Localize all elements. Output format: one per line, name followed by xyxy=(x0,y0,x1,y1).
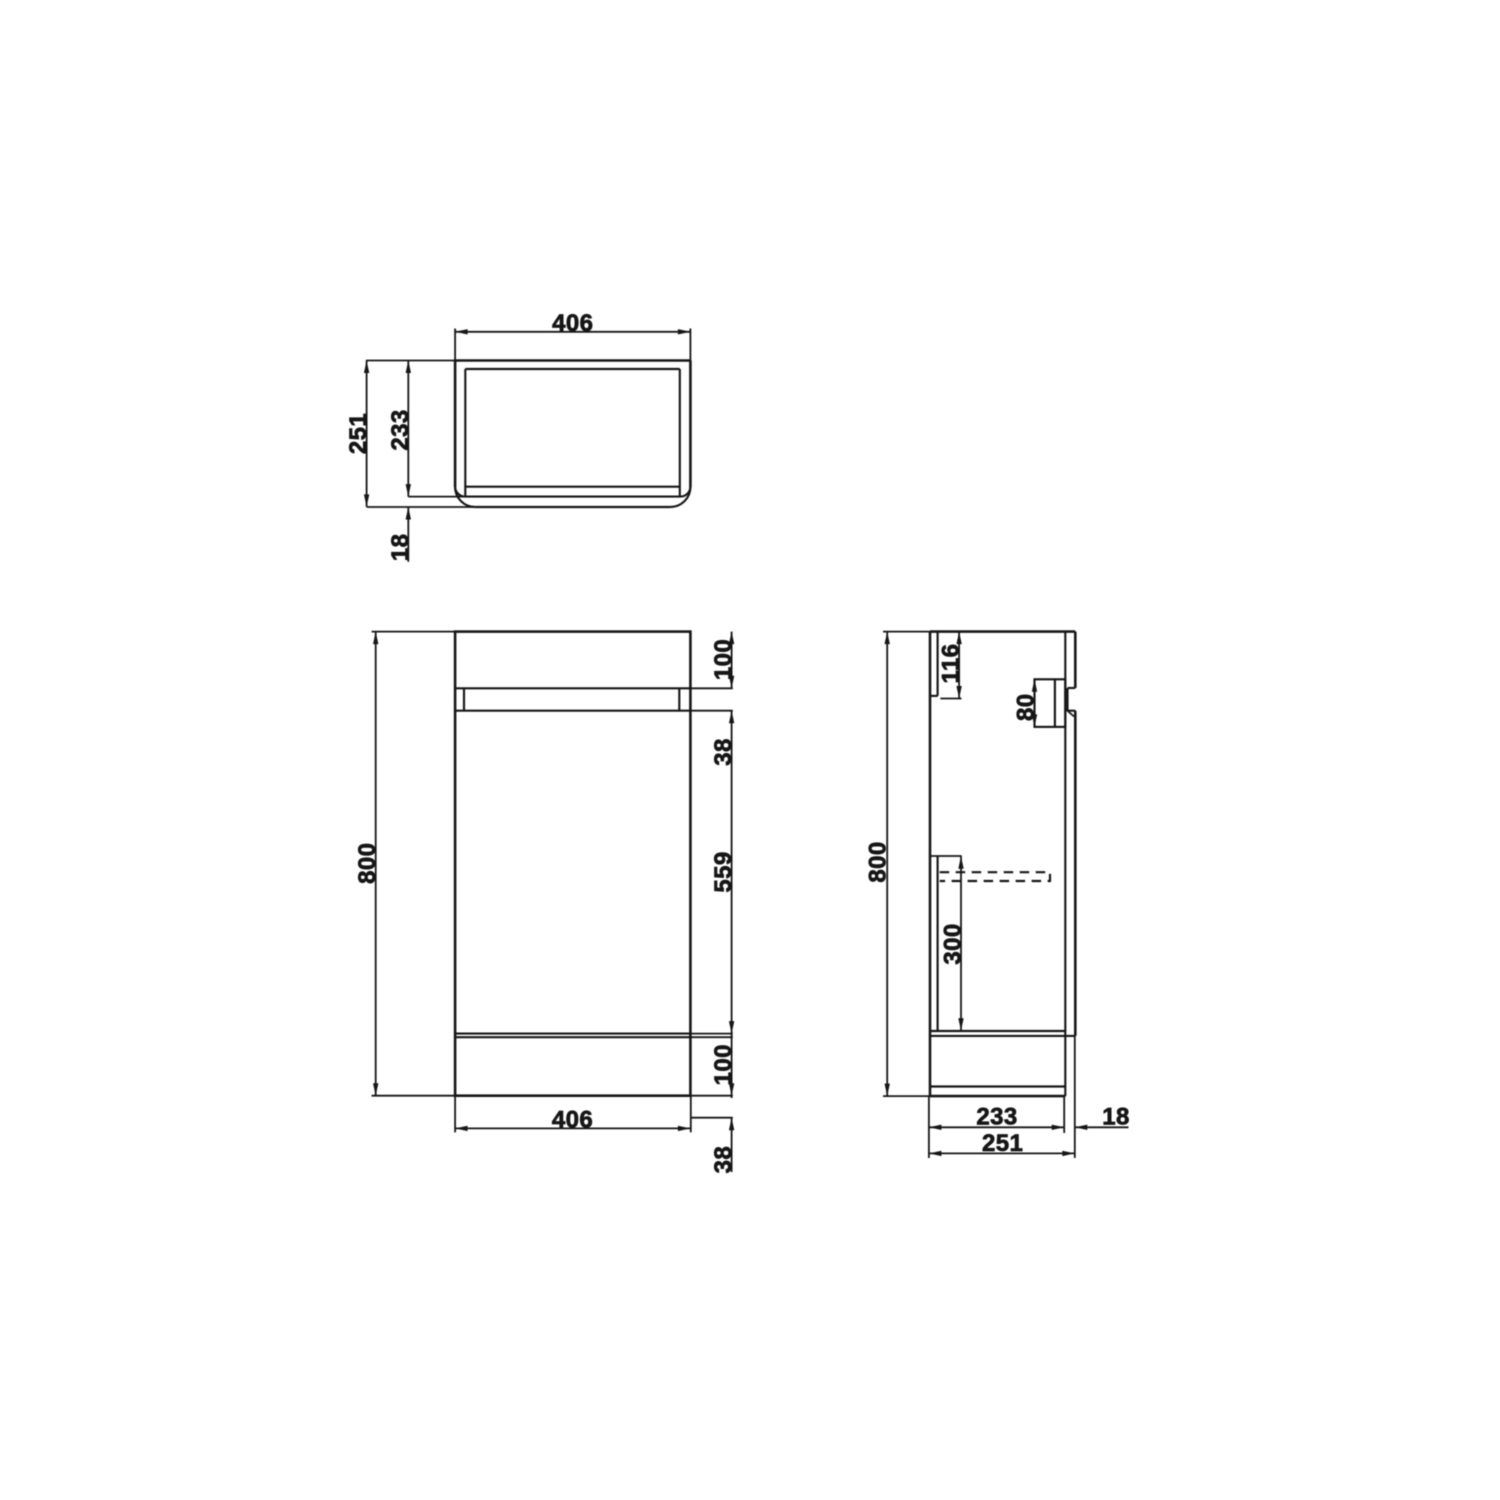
svg-text:251: 251 xyxy=(982,1130,1023,1157)
svg-text:559: 559 xyxy=(710,851,737,892)
svg-text:38: 38 xyxy=(710,1146,737,1174)
svg-text:233: 233 xyxy=(387,409,414,450)
svg-text:18: 18 xyxy=(387,534,414,562)
svg-text:38: 38 xyxy=(710,738,737,766)
svg-text:18: 18 xyxy=(1102,1104,1130,1131)
svg-text:406: 406 xyxy=(552,310,593,337)
svg-text:406: 406 xyxy=(552,1107,593,1134)
svg-text:233: 233 xyxy=(976,1104,1017,1131)
svg-text:251: 251 xyxy=(345,413,372,454)
svg-text:100: 100 xyxy=(710,639,737,680)
svg-text:800: 800 xyxy=(354,843,381,884)
svg-text:800: 800 xyxy=(865,841,892,882)
svg-text:80: 80 xyxy=(1013,694,1040,722)
svg-text:116: 116 xyxy=(938,644,965,684)
svg-text:300: 300 xyxy=(939,923,966,964)
svg-text:100: 100 xyxy=(710,1044,737,1085)
